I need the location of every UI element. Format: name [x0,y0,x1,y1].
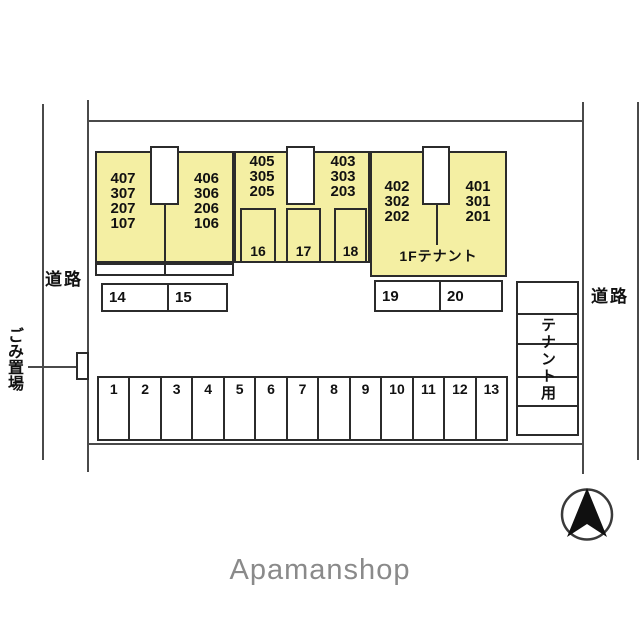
garbage-leader-line [28,366,78,368]
unit-number: 307 [95,186,151,201]
first-floor-tenant-label: 1Fテナント [370,246,507,266]
property-border-left [87,100,89,472]
unit-number: 402 [371,179,423,194]
property-boundary-bottom [88,443,584,445]
unit-number: 107 [95,216,151,231]
unit-number: 206 [179,201,234,216]
parking-stall-20: 20 [439,282,501,310]
left-block-divider-wall [164,205,166,263]
unit-number: 305 [236,169,288,184]
unit-stack-405: 405305205 [236,154,288,199]
brand-logo-text: Apamanshop [0,554,640,587]
parking-stall-14: 14 [103,285,167,310]
road-line-right-outer [637,102,639,460]
covered-stall-17: 17 [286,208,321,263]
tenant-parking-label: テナント用 [537,317,558,407]
unit-number: 302 [371,194,423,209]
stairwell-right [422,146,450,205]
road-line-left-outer [42,104,44,460]
parking-stall: 12 [443,378,474,439]
parking-stall: 7 [286,378,317,439]
unit-number: 401 [450,179,506,194]
tenant-parking-column: テナント用 [516,281,579,436]
tenant-parking-cell [518,283,577,313]
unit-stack-403: 403303203 [316,154,370,199]
unit-number: 202 [371,209,423,224]
unit-stack-406: 406306206106 [179,171,234,231]
left-block-porch-strip [95,263,234,276]
unit-stack-401: 401301201 [450,179,506,224]
covered-stall-18: 18 [334,208,367,263]
parking-stall: 11 [412,378,443,439]
parking-stall: 9 [349,378,380,439]
property-border-right [582,102,584,474]
unit-number: 306 [179,186,234,201]
unit-number: 406 [179,171,234,186]
unit-number: 106 [179,216,234,231]
property-boundary-top [88,120,584,122]
unit-number: 403 [316,154,370,169]
parking-row-1-13: 12345678910111213 [97,376,508,441]
parking-stall: 13 [475,378,506,439]
unit-stack-402: 402302202 [371,179,423,224]
road-label-right: 道路 [591,282,629,307]
covered-stall-16: 16 [240,208,276,263]
porch-divider [164,265,166,274]
unit-number: 203 [316,184,370,199]
parking-box-19-20: 19 20 [374,280,503,312]
unit-number: 405 [236,154,288,169]
parking-stall: 5 [223,378,254,439]
parking-stall: 10 [380,378,411,439]
unit-number: 207 [95,201,151,216]
parking-stall-19: 19 [376,282,439,310]
unit-stack-407: 407307207107 [95,171,151,231]
parking-stall: 6 [254,378,285,439]
road-label-left: 道路 [45,265,83,290]
site-plan-diagram: 道路 道路 ごみ置場 407307207107 406306206106 405… [0,0,640,640]
unit-number: 301 [450,194,506,209]
parking-box-14-15: 14 15 [101,283,228,312]
garbage-area-label: ごみ置場 [1,327,25,403]
unit-number: 201 [450,209,506,224]
right-block-stair-wall [436,205,438,245]
parking-stall: 1 [99,378,128,439]
north-compass-icon [559,486,615,542]
unit-number: 205 [236,184,288,199]
garbage-box [76,352,89,380]
parking-stall: 3 [160,378,191,439]
unit-number: 407 [95,171,151,186]
parking-stall: 8 [317,378,348,439]
stairwell-middle [286,146,315,205]
tenant-parking-cell [518,405,577,434]
stairwell-left [150,146,179,205]
parking-stall-15: 15 [167,285,226,310]
parking-stall: 2 [128,378,159,439]
unit-number: 303 [316,169,370,184]
parking-stall: 4 [191,378,222,439]
